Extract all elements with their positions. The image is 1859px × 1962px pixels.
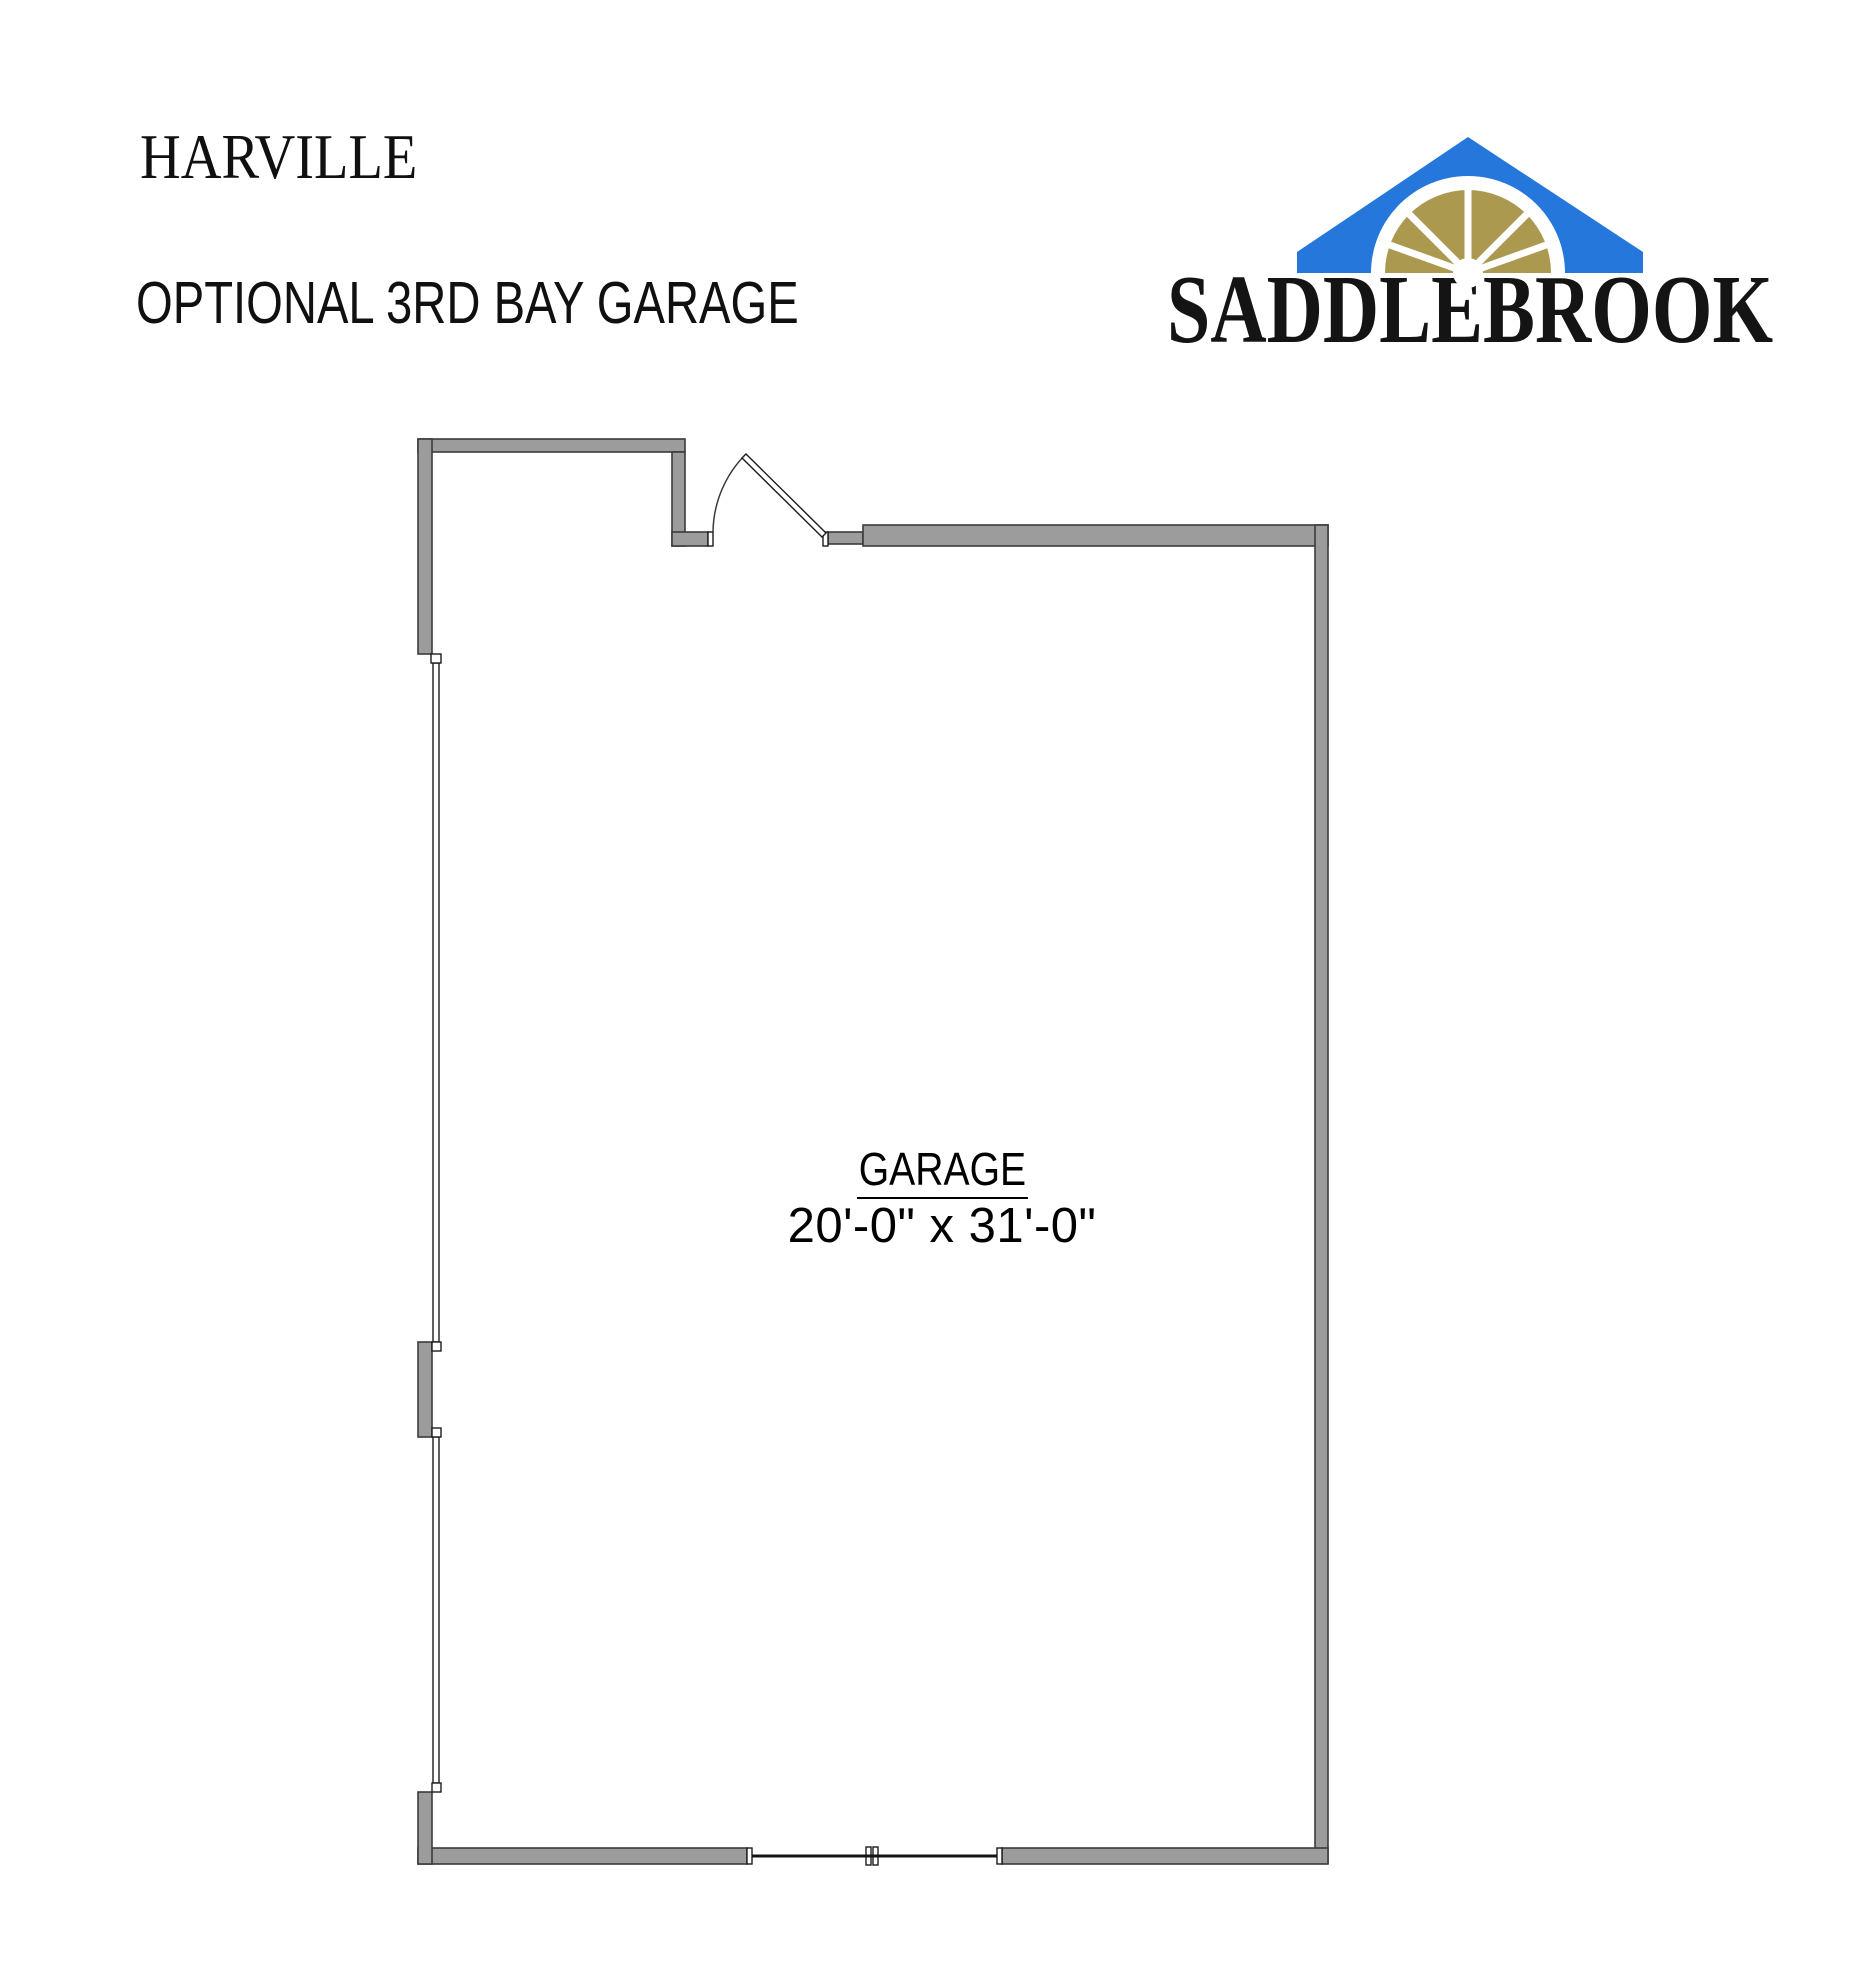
plan-sheet: HARVILLE OPTIONAL 3RD BAY GARAGE SADDLEB… xyxy=(0,0,1859,1962)
wall-left-pier xyxy=(418,1342,432,1437)
wall-top-right xyxy=(863,525,1328,546)
wall-left-lower xyxy=(418,1792,432,1864)
room-label-block: GARAGE 20'-0" x 31'-0" xyxy=(742,1146,1142,1251)
left-windows xyxy=(433,663,439,1783)
wall-left-upper xyxy=(418,439,432,654)
door-swing-arc xyxy=(713,454,746,532)
door-leaf xyxy=(742,454,826,537)
wall-entry-nub xyxy=(672,532,708,546)
jamb-bottom-right xyxy=(997,1848,1002,1864)
jamb-pier-top xyxy=(432,1342,441,1351)
logo-fan-hub xyxy=(1453,258,1483,288)
room-dimensions: 20'-0" x 31'-0" xyxy=(742,1202,1142,1251)
saddlebrook-logo-icon xyxy=(1297,137,1643,288)
jamb-pier-bottom xyxy=(432,1428,441,1437)
jamb-left-upper xyxy=(431,654,441,663)
jamb-bottom-left xyxy=(747,1848,752,1864)
wall-bottom-right xyxy=(1002,1848,1328,1864)
window-left-lower xyxy=(433,1437,439,1783)
floor-plan-drawing xyxy=(0,0,1859,1962)
wall-entry-right xyxy=(828,532,863,544)
room-name: GARAGE xyxy=(857,1146,1028,1199)
wall-right xyxy=(1315,525,1328,1863)
wall-top-left xyxy=(418,439,685,452)
wall-bottom-left xyxy=(418,1848,747,1864)
window-left-upper xyxy=(433,663,439,1342)
jamb-left-lower xyxy=(432,1783,441,1792)
jamb-entry-left xyxy=(708,532,713,546)
